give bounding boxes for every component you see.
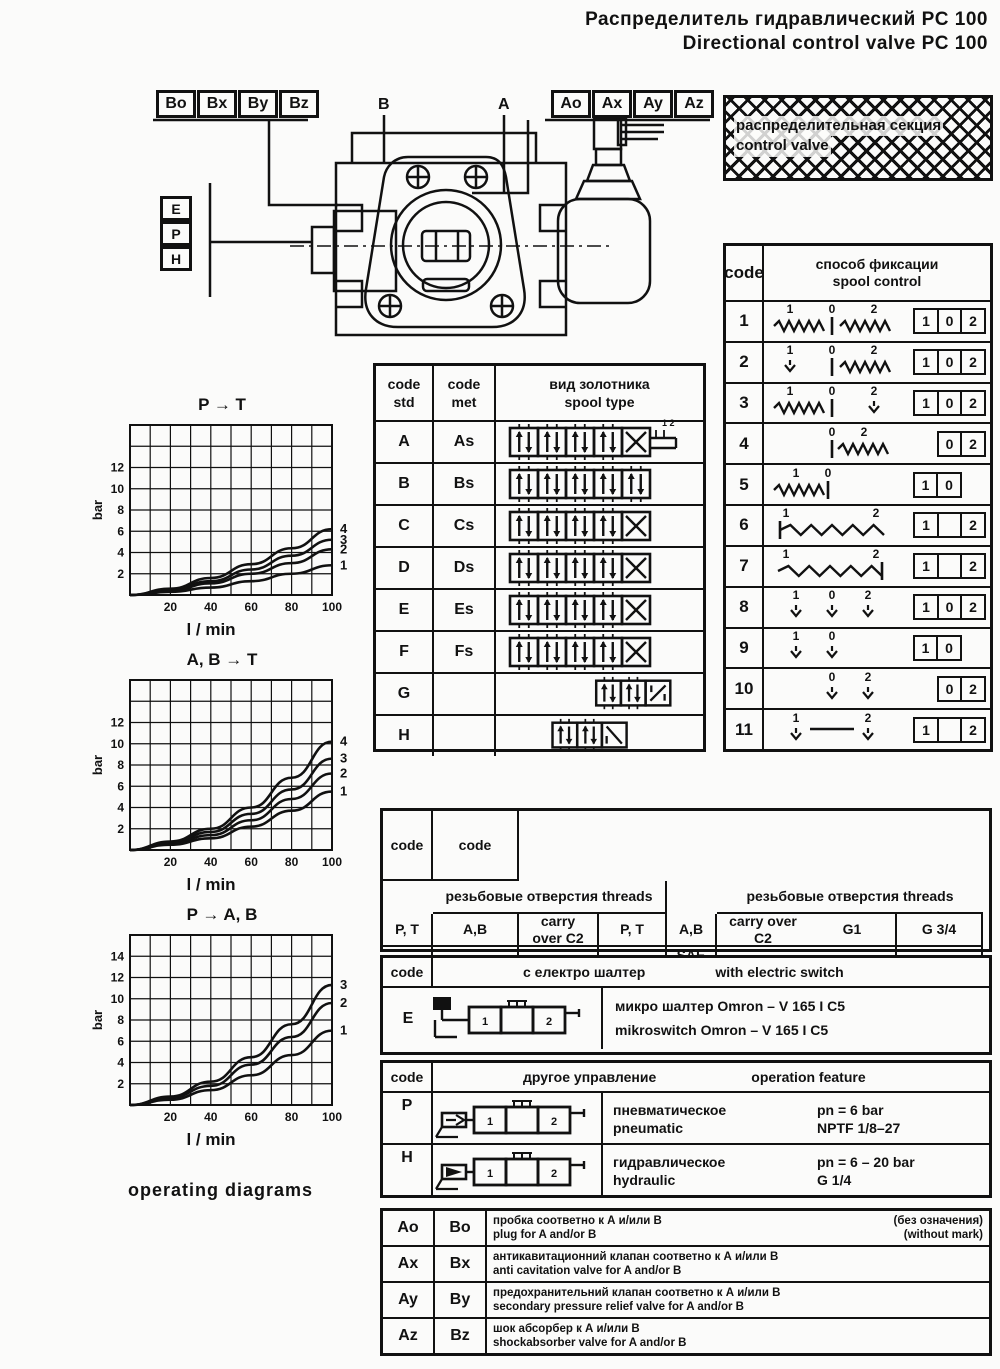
svg-text:2: 2 <box>117 567 124 581</box>
position-box: 0 <box>937 431 963 457</box>
svg-text:2: 2 <box>551 1168 557 1180</box>
operation-header-ru: другое управление <box>523 1069 656 1085</box>
svg-text:14: 14 <box>111 949 125 963</box>
spool-control-row-2: 2 102 102 <box>726 341 990 382</box>
svg-text:2: 2 <box>865 670 872 684</box>
title-ru: Распределитель гидравлический PC 100 <box>585 8 988 32</box>
spool-symbol-H <box>496 716 703 756</box>
electric-header-ru: с електро шалтер <box>523 964 645 980</box>
spool-symbol-C <box>496 506 703 546</box>
operation-feature-table: code другое управление operation feature… <box>380 1060 992 1198</box>
hydraulic-actuator-symbol: 12 <box>433 1145 603 1197</box>
operation-header-en: operation feature <box>751 1069 865 1085</box>
svg-text:8: 8 <box>117 1013 124 1027</box>
electric-line-en: mikroswitch Omron – V 165 I C5 <box>615 1019 989 1043</box>
svg-text:2: 2 <box>871 343 878 357</box>
position-box: 2 <box>960 390 986 416</box>
svg-text:l / min: l / min <box>186 1130 235 1149</box>
svg-text:12: 12 <box>111 716 125 730</box>
svg-text:80: 80 <box>285 600 299 614</box>
chip-P: P <box>160 221 192 246</box>
spool-control-symbol-detent-spring: 102 <box>766 343 898 381</box>
chip-Bx: Bx <box>197 90 237 118</box>
position-box: 0 <box>937 308 963 334</box>
sub-pt: P, T <box>383 914 433 947</box>
position-box: 0 <box>937 349 963 375</box>
svg-text:0: 0 <box>829 343 836 357</box>
spool-control-row-8: 8 102 102 <box>726 586 990 627</box>
sub-ab: A,B <box>433 914 519 947</box>
position-box: 2 <box>960 512 986 538</box>
position-box: 1 <box>913 472 939 498</box>
svg-text:1: 1 <box>783 547 790 561</box>
spool-control-row-3: 3 102 102 <box>726 382 990 423</box>
chip-Ax: Ax <box>592 90 632 118</box>
svg-text:1: 1 <box>487 1168 493 1180</box>
svg-text:1: 1 <box>787 302 794 316</box>
svg-text:l / min: l / min <box>186 875 235 894</box>
svg-text:2: 2 <box>871 384 878 398</box>
electric-header-en: with electric switch <box>715 964 843 980</box>
port-a-marker: A <box>498 96 510 114</box>
spool-control-symbol-detent-2l: 10 <box>766 629 898 667</box>
svg-text:40: 40 <box>204 600 218 614</box>
svg-text:1: 1 <box>793 588 800 602</box>
position-box: 2 <box>960 431 986 457</box>
svg-text:100: 100 <box>322 1110 342 1124</box>
svg-text:1: 1 <box>340 557 347 572</box>
spool-control-row-1: 1 102 102 <box>726 300 990 341</box>
svg-text:8: 8 <box>117 758 124 772</box>
svg-text:4: 4 <box>117 546 124 560</box>
threads-table: code резьбовые отверстия threads code ре… <box>380 808 992 952</box>
svg-text:1: 1 <box>783 506 790 520</box>
svg-text:10: 10 <box>111 992 125 1006</box>
valve-drawing <box>140 85 720 375</box>
svg-text:2: 2 <box>873 547 880 561</box>
svg-text:60: 60 <box>245 855 259 869</box>
svg-text:bar: bar <box>90 755 105 775</box>
threads-header-right: резьбовые отверстия threads <box>717 881 983 914</box>
spool-control-row-7: 7 12 12 <box>726 545 990 586</box>
spool-type-row-C: C Cs <box>376 504 703 546</box>
svg-text:2: 2 <box>865 711 872 725</box>
chip-E: E <box>160 196 192 221</box>
svg-text:0: 0 <box>829 302 836 316</box>
threads-header-left: резьбовые отверстия threads <box>433 881 667 914</box>
svg-text:20: 20 <box>164 600 178 614</box>
spool-control-symbol-spring-right: 02 <box>766 425 898 463</box>
svg-text:8: 8 <box>117 503 124 517</box>
spool-symbol-E <box>496 590 703 630</box>
chip-Az: Az <box>674 90 714 118</box>
svg-text:2: 2 <box>865 588 872 602</box>
spool-type-row-D: D Ds <box>376 546 703 588</box>
svg-text:2: 2 <box>340 541 347 556</box>
svg-text:20: 20 <box>164 1110 178 1124</box>
spool-control-row-6: 6 12 12 <box>726 504 990 545</box>
svg-text:4: 4 <box>340 734 348 749</box>
chart-title: P → A, B <box>92 905 352 925</box>
spool-control-row-4: 4 02 02 <box>726 422 990 463</box>
svg-text:bar: bar <box>90 1010 105 1030</box>
position-box: 2 <box>960 553 986 579</box>
option-row-anticavitation: Ax Bx антикавитационний клапан соответно… <box>383 1247 989 1283</box>
position-box <box>937 553 963 579</box>
position-box: 1 <box>913 349 939 375</box>
title-en: Directional control valve PC 100 <box>585 32 988 56</box>
svg-text:2: 2 <box>873 506 880 520</box>
svg-text:40: 40 <box>204 855 218 869</box>
electric-actuator-symbol: 12 <box>407 993 617 1045</box>
svg-text:l / min: l / min <box>186 620 235 639</box>
port-b-marker: B <box>378 96 390 114</box>
svg-text:2: 2 <box>340 995 347 1010</box>
position-box <box>937 512 963 538</box>
operating-diagrams-label: operating diagrams <box>128 1180 313 1201</box>
spool-control-symbol-detent-dash: 12 <box>766 711 898 749</box>
electric-switch-table: code с електро шалтер with electric swit… <box>380 955 992 1055</box>
spool-control-row-10: 10 02 02 <box>726 667 990 708</box>
chart-title: A, B → T <box>92 650 352 670</box>
position-box: 2 <box>960 594 986 620</box>
position-box <box>937 717 963 743</box>
chip-Bo: Bo <box>156 90 196 118</box>
svg-text:bar: bar <box>90 500 105 520</box>
svg-text:6: 6 <box>117 524 124 538</box>
spool-symbol-B <box>496 464 703 504</box>
sub-ab: A,B <box>667 914 717 947</box>
code-E: E <box>383 988 433 1049</box>
chart-title: P → T <box>92 395 352 415</box>
spool-control-row-5: 5 10 10 <box>726 463 990 504</box>
spool-type-row-E: E Es <box>376 588 703 630</box>
spool-control-row-11: 11 12 12 <box>726 708 990 749</box>
position-box: 1 <box>913 553 939 579</box>
spool-control-symbol-spring-wide-bar: 12 <box>766 547 898 585</box>
position-box: 1 <box>913 594 939 620</box>
spool-type-row-F: F Fs <box>376 630 703 672</box>
position-box: 0 <box>936 472 962 498</box>
svg-text:1: 1 <box>793 629 800 643</box>
position-box: 2 <box>960 349 986 375</box>
spool-type-row-H: H <box>376 714 703 756</box>
svg-text:4: 4 <box>117 1056 124 1070</box>
chip-Ay: Ay <box>633 90 673 118</box>
position-box: 1 <box>913 717 939 743</box>
sub-carry: carry over C2 <box>717 914 809 947</box>
svg-text:2: 2 <box>117 1077 124 1091</box>
threads-code-header-2: code <box>433 811 519 881</box>
svg-text:10: 10 <box>111 482 125 496</box>
svg-text:1: 1 <box>793 711 800 725</box>
position-box: 1 <box>913 308 939 334</box>
spool-symbol-F <box>496 632 703 672</box>
svg-text:1 2: 1 2 <box>662 418 675 428</box>
chart-p-ab: P → A, B 246810121420406080100barl / min… <box>92 905 352 1159</box>
chip-Bz: Bz <box>279 90 319 118</box>
spool-symbol-D <box>496 548 703 588</box>
svg-text:2: 2 <box>117 822 124 836</box>
spool-type-header: codestd codemet вид золотникаspool type <box>376 366 703 420</box>
spool-control-table: code способ фиксацииspool control 1 102 … <box>723 243 993 752</box>
spool-type-table: codestd codemet вид золотникаspool type … <box>373 363 706 752</box>
spool-type-row-B: B Bs <box>376 462 703 504</box>
svg-text:0: 0 <box>829 670 836 684</box>
chip-H: H <box>160 246 192 271</box>
spool-control-symbol-detent-2r: 02 <box>766 670 898 708</box>
spool-control-row-9: 9 10 10 <box>726 627 990 668</box>
svg-text:0: 0 <box>829 384 836 398</box>
svg-text:1: 1 <box>482 1016 488 1028</box>
section-label-en: control valve <box>734 136 831 156</box>
position-box: 2 <box>960 717 986 743</box>
svg-text:2: 2 <box>871 302 878 316</box>
svg-text:2: 2 <box>340 766 347 781</box>
spool-control-symbol-spring-wide: 12 <box>766 506 898 544</box>
sub-pt: P, T <box>599 914 667 947</box>
electric-line-ru: микро шалтер Omron – V 165 I C5 <box>615 995 989 1019</box>
spool-symbol-G <box>496 674 703 714</box>
svg-text:1: 1 <box>340 784 347 799</box>
position-box: 1 <box>913 635 939 661</box>
svg-text:20: 20 <box>164 855 178 869</box>
svg-text:10: 10 <box>111 737 125 751</box>
position-box: 1 <box>913 390 939 416</box>
svg-text:3: 3 <box>340 751 347 766</box>
spool-control-symbol-spring-detent: 102 <box>766 384 898 422</box>
spool-control-symbol-spring-left: 10 <box>766 466 898 504</box>
spool-symbol-A: 1 2 <box>496 422 703 462</box>
svg-text:12: 12 <box>111 461 125 475</box>
chart-p-t: P → T 2468101220406080100barl / min4321 <box>92 395 352 649</box>
chip-Ao: Ao <box>551 90 591 118</box>
svg-text:0: 0 <box>829 629 836 643</box>
svg-text:80: 80 <box>285 855 299 869</box>
sub-carry: carry over C2 <box>519 914 599 947</box>
code-G1: G1 <box>809 914 897 947</box>
spool-control-header: code способ фиксацииspool control <box>726 246 990 300</box>
position-box: 2 <box>960 308 986 334</box>
svg-text:1: 1 <box>787 384 794 398</box>
svg-text:0: 0 <box>829 588 836 602</box>
svg-text:40: 40 <box>204 1110 218 1124</box>
svg-text:6: 6 <box>117 779 124 793</box>
page-title: Распределитель гидравлический PC 100 Dir… <box>585 8 988 56</box>
svg-text:1: 1 <box>787 343 794 357</box>
operation-code-header: code <box>383 1063 433 1091</box>
position-box: 0 <box>937 390 963 416</box>
svg-text:2: 2 <box>551 1116 557 1128</box>
option-row-plug: Ao Bo пробка соответно к А и/или В(без о… <box>383 1211 989 1247</box>
svg-text:2: 2 <box>861 425 868 439</box>
svg-text:1: 1 <box>487 1116 493 1128</box>
svg-text:1: 1 <box>340 1023 347 1038</box>
position-box: 1 <box>913 512 939 538</box>
svg-text:0: 0 <box>825 466 832 480</box>
spool-control-symbol-detent-3: 102 <box>766 588 898 626</box>
threads-code-header: code <box>383 811 433 881</box>
svg-text:2: 2 <box>546 1016 552 1028</box>
svg-text:4: 4 <box>117 801 124 815</box>
svg-text:6: 6 <box>117 1034 124 1048</box>
svg-text:80: 80 <box>285 1110 299 1124</box>
port-options-table: Ao Bo пробка соответно к А и/или В(без о… <box>380 1208 992 1356</box>
section-label-ru: распределительная секция <box>734 116 943 136</box>
svg-text:0: 0 <box>829 425 836 439</box>
svg-text:12: 12 <box>111 971 125 985</box>
svg-text:60: 60 <box>245 600 259 614</box>
position-box: 0 <box>937 594 963 620</box>
option-row-shockabsorber: Az Bz шок абсорбер к А и/или Вshockabsor… <box>383 1319 989 1353</box>
chart-ab-t: A, B → T 2468101220406080100barl / min43… <box>92 650 352 904</box>
pneumatic-actuator-symbol: 12 <box>433 1093 603 1145</box>
electric-code-header: code <box>383 958 433 986</box>
spool-control-symbol-spring-spring: 102 <box>766 302 898 340</box>
svg-text:60: 60 <box>245 1110 259 1124</box>
position-box: 0 <box>937 676 963 702</box>
svg-text:100: 100 <box>322 855 342 869</box>
chip-By: By <box>238 90 278 118</box>
position-box: 0 <box>936 635 962 661</box>
position-box: 2 <box>960 676 986 702</box>
svg-text:1: 1 <box>793 466 800 480</box>
spool-type-row-G: G <box>376 672 703 714</box>
spool-type-row-A: A As 1 2 <box>376 420 703 462</box>
svg-text:3: 3 <box>340 977 347 992</box>
option-row-relief: Ay By предохранительний клапан соответно… <box>383 1283 989 1319</box>
control-valve-section-box: распределительная секция control valve <box>723 95 993 181</box>
svg-text:100: 100 <box>322 600 342 614</box>
